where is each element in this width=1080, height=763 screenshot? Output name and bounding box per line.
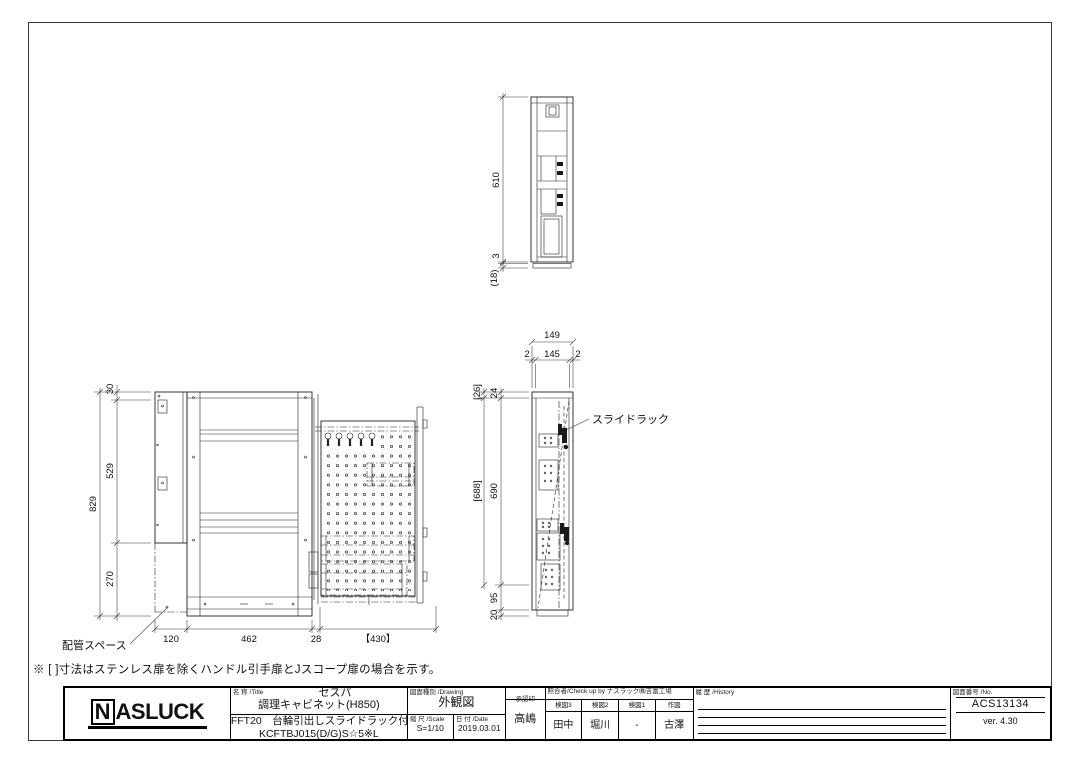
nasluck-logo: NASLUCK — [88, 699, 208, 729]
front-view: 30 529 270 829 120 462 28 【430】 配管スペース — [62, 384, 439, 652]
check-col-value: 堀川 — [582, 712, 618, 741]
history-line — [698, 718, 946, 726]
dim-label-seg-bottom: 270 — [105, 571, 116, 587]
dim-label-base-upper: 95 — [489, 593, 500, 604]
history-line — [698, 710, 946, 718]
title-label: 名 称 /Title — [231, 688, 263, 696]
drawing-number: ACS13134 — [951, 698, 1050, 711]
approval-cell: 承認印 高嶋 — [506, 688, 546, 739]
dim-label-gap: 3 — [491, 253, 502, 258]
check-col-label: 検図2 — [582, 700, 618, 712]
scale-value: S=1/10 — [408, 723, 453, 733]
dim-label-seg-mid: 529 — [105, 463, 116, 479]
dim-label-w2: 462 — [241, 634, 257, 645]
title-block: NASLUCK 名 称 /Title セスパ 調理キャビネット(H850) FF… — [63, 686, 1052, 741]
logo-cell: NASLUCK — [65, 688, 231, 739]
model-description: FFT20 台輪引出しスライドラック付 — [231, 715, 407, 728]
top-view: 610 3 (18) — [489, 93, 573, 286]
product-name: 調理キャビネット(H850) — [231, 699, 407, 711]
product-series: セスパ — [263, 688, 407, 699]
drawing-number-cell: 図面番号 /No. ACS13134 ver. 4.30 — [951, 688, 1050, 739]
date-label: 日 付 /Date — [454, 715, 505, 723]
dim-label-total-width: 149 — [544, 330, 560, 341]
date-value: 2019.03.01 — [454, 723, 505, 733]
dim-label-top: 24 — [489, 388, 500, 399]
history-line — [698, 726, 946, 734]
dim-label-base: (18) — [489, 270, 500, 287]
dim-label-w3: 28 — [311, 634, 322, 645]
dim-label-w1: 120 — [163, 634, 179, 645]
model-code: KCFTBJ015(D/G)S☆5※L — [231, 728, 407, 741]
check-col-label: 検図3 — [546, 700, 582, 712]
dim-label-total-height: 829 — [88, 496, 99, 512]
history-cell: 履 歴 /History — [694, 688, 951, 739]
check-col-label: 作図 — [656, 700, 693, 712]
drawing-type: 外観図 — [408, 696, 505, 709]
logo-text: ASLUCK — [116, 699, 205, 724]
dim-label-w-right: 2 — [575, 349, 580, 360]
check-col-value: 田中 — [546, 712, 582, 741]
number-label: 図面番号 /No. — [951, 688, 1050, 696]
check-col-value: 古澤 — [656, 712, 693, 741]
dim-label-seg-top: 30 — [105, 384, 116, 395]
dim-label-w4: 【430】 — [361, 634, 396, 645]
check-cell: 照合者/Check up by ナスラック㈱吉富工場 検図3田中 検図2堀川 検… — [546, 688, 694, 739]
scale-label: 縮 尺 /Scale — [408, 715, 453, 723]
dim-label-w-left: 2 — [524, 349, 529, 360]
dim-label-alt-body: [688] — [472, 480, 483, 501]
version: ver. 4.30 — [951, 713, 1050, 727]
history-label: 履 歴 /History — [694, 688, 950, 696]
footnote: ※ [ ]寸法はステンレス扉を除くハンドル引手扉とJスコープ扉の場合を示す。 — [33, 661, 441, 677]
sheet-border — [29, 23, 1052, 741]
side-view: 149 2 145 2 24 [26] 690 [688] 95 20 スライド… — [472, 330, 669, 620]
history-line — [698, 702, 946, 710]
slide-rack-annotation: スライドラック — [592, 413, 669, 426]
approval-name: 高嶋 — [506, 700, 545, 726]
piping-space-annotation: 配管スペース — [62, 638, 127, 652]
approval-label: 承認印 — [515, 695, 535, 703]
dim-label-w-mid: 145 — [544, 349, 560, 360]
logo-n: N — [91, 699, 115, 725]
drawing-type-cell: 図面種別 /Drawing 外観図 縮 尺 /Scale S=1/10 日 付 … — [408, 688, 506, 739]
dim-label-body: 690 — [489, 483, 500, 499]
check-col-label: 検図1 — [619, 700, 655, 712]
drawing-canvas: 610 3 (18) — [0, 0, 1080, 763]
dim-label-depth: 610 — [491, 172, 502, 188]
title-cell: 名 称 /Title セスパ 調理キャビネット(H850) FFT20 台輪引出… — [231, 688, 408, 739]
dim-label-alt-top: [26] — [472, 384, 483, 400]
check-col-value: - — [619, 712, 655, 741]
check-label: 照合者/Check up by ナスラック㈱吉富工場 — [546, 687, 672, 695]
dim-label-base-lower: 20 — [489, 610, 500, 621]
